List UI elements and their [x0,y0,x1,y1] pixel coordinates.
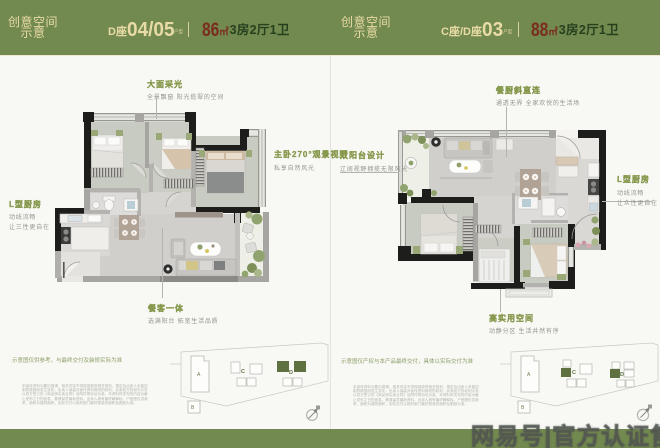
svg-text:D: D [620,372,624,378]
svg-text:C: C [241,369,245,375]
svg-text:C: C [572,370,576,376]
svg-text:D: D [289,370,293,376]
